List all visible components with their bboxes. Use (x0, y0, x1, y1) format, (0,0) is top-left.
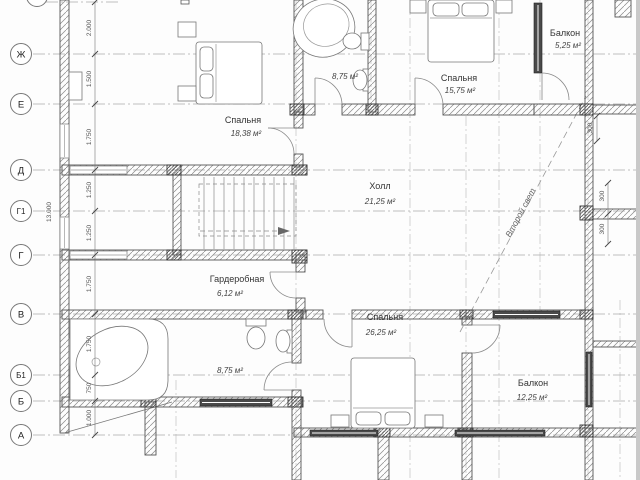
axis-label: Б1 (16, 371, 26, 380)
floor-plan-page: Второй свет (0, 0, 640, 480)
room-area-bedroom-tr: 15,75 м² (445, 86, 476, 95)
dim-label-300: 300 (599, 190, 606, 201)
door-bedroom-bottom (324, 319, 352, 347)
axis-bubble-a: А (11, 425, 32, 446)
bed-icon-bottom (331, 358, 443, 428)
door-bedroom-top-left (268, 128, 294, 154)
axis-bubble-e: Е (11, 94, 32, 115)
door-wardrobe (270, 272, 296, 298)
dim-label: 2.000 (86, 19, 93, 36)
second-light-label: Второй свет (503, 186, 537, 238)
axis-label: Г (18, 251, 23, 262)
room-area-hall: 21,25 м² (364, 197, 396, 206)
sink-icon-bottom (276, 330, 292, 353)
dim-label: 1.250 (86, 181, 93, 198)
room-name-bedroom-tl: Спальня (225, 115, 261, 125)
axis-label: Д (18, 166, 25, 177)
room-area-bedroom-bottom: 26,25 м² (365, 328, 397, 337)
dim-label-300: 300 (599, 223, 606, 234)
axis-bubble-g: Г (11, 245, 32, 266)
room-name-balcony-bottom: Балкон (518, 378, 548, 388)
second-light-marker: Второй свет (460, 96, 586, 332)
axis-bubble-top-partial (27, 0, 48, 7)
room-name-bedroom-tr: Спальня (441, 73, 477, 83)
room-area-wardrobe: 6,12 м² (217, 289, 243, 298)
axis-label: А (18, 431, 25, 442)
axis-bubble-b: Б (11, 391, 32, 412)
axis-bubble-v: В (11, 304, 32, 325)
dim-label: 750 (86, 382, 93, 393)
room-area-bedroom-tl: 18,38 м² (231, 129, 262, 138)
toilet-icon-top (343, 33, 369, 50)
axis-bubble-zh: Ж (11, 44, 32, 65)
bathtub-icon-bottom (66, 314, 168, 400)
room-name-balcony-top: Балкон (550, 28, 580, 38)
door-bathroom-top (315, 78, 342, 104)
room-name-bedroom-bottom: Спальня (367, 312, 403, 322)
floor-plan-drawing: Второй свет (0, 0, 640, 480)
dim-label-300: 300 (587, 122, 594, 133)
door-bathroom-bottom (264, 362, 292, 390)
page-edge (636, 0, 640, 480)
bed-icon-top-right (410, 0, 512, 62)
door-balcony-top (542, 73, 569, 100)
axis-bubble-b1: Б1 (11, 365, 32, 386)
axis-label: Е (18, 100, 24, 111)
dim-label: 1.500 (86, 70, 93, 87)
furniture (66, 0, 512, 428)
axis-bubble-d: Д (11, 160, 32, 181)
axis-label: В (18, 310, 24, 321)
door-bedroom-top-right (415, 78, 443, 104)
room-name-wardrobe: Гардеробная (210, 274, 265, 284)
dim-label: 1.250 (86, 224, 93, 241)
axis-label: Б (18, 397, 24, 408)
axis-bubble-g1: Г1 (11, 201, 32, 222)
door-balcony-bottom (472, 325, 500, 353)
doors (264, 73, 569, 390)
room-labels: Спальня 18,38 м² 8,75 м² Спальня 15,75 м… (210, 28, 582, 402)
dim-label: 1.000 (86, 409, 93, 426)
total-dim-label: 13.000 (46, 202, 53, 222)
dim-label: 1.750 (86, 275, 93, 292)
axis-bubbles: Ж Е Д Г1 Г В Б1 Б (11, 0, 48, 446)
axis-label: Ж (17, 50, 26, 61)
staircase (199, 177, 296, 249)
toilet-icon-bottom (246, 319, 266, 349)
dim-label: 1.750 (86, 128, 93, 145)
axis-label: Г1 (17, 207, 26, 216)
room-area-bathroom-bottom: 8,75 м² (217, 366, 243, 375)
room-area-balcony-bottom: 12,25 м² (517, 393, 548, 402)
dim-label: 1.750 (86, 335, 93, 352)
room-name-hall: Холл (369, 181, 390, 191)
room-area-balcony-top: 5,25 м² (555, 41, 581, 50)
room-area-bathroom-top: 8,75 м² (332, 72, 358, 81)
